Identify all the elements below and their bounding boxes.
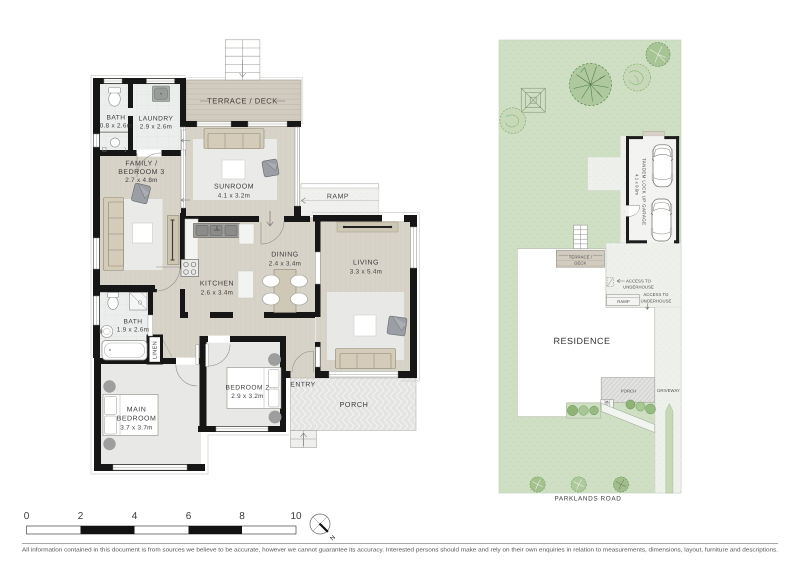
svg-text:KITCHEN: KITCHEN: [200, 281, 234, 288]
svg-text:2.9 x 2.6m: 2.9 x 2.6m: [140, 124, 172, 131]
svg-text:BEDROOM 3: BEDROOM 3: [118, 169, 165, 176]
svg-text:RAMP: RAMP: [327, 193, 349, 200]
svg-text:ENTRY: ENTRY: [290, 382, 315, 389]
svg-text:PARKLANDS ROAD: PARKLANDS ROAD: [555, 496, 622, 503]
svg-text:2.4 x 3.4m: 2.4 x 3.4m: [269, 261, 301, 268]
svg-text:DINING: DINING: [271, 252, 299, 259]
svg-text:BATH: BATH: [123, 319, 142, 326]
svg-text:2.6 x 3.4m: 2.6 x 3.4m: [201, 290, 233, 297]
svg-text:ACCESS TO: ACCESS TO: [644, 292, 670, 297]
svg-text:2.9 x 3.2m: 2.9 x 3.2m: [231, 393, 263, 400]
svg-text:2.7 x 4.8m: 2.7 x 4.8m: [125, 177, 157, 184]
svg-text:TANDEM LOCK UP GARAGE: TANDEM LOCK UP GARAGE: [642, 158, 647, 225]
svg-text:RAMP: RAMP: [617, 299, 630, 304]
svg-text:UNDERHOUSE: UNDERHOUSE: [623, 284, 654, 289]
svg-text:BEDROOM: BEDROOM: [117, 416, 157, 423]
svg-text:UNDERHOUSE: UNDERHOUSE: [641, 298, 672, 303]
svg-text:LIVING: LIVING: [353, 260, 379, 267]
svg-text:DRIVEWAY: DRIVEWAY: [657, 388, 680, 393]
svg-text:6: 6: [186, 511, 192, 522]
svg-text:2: 2: [78, 511, 84, 522]
svg-text:ACCESS TO: ACCESS TO: [626, 278, 652, 283]
svg-text:3.7 x 3.7m: 3.7 x 3.7m: [120, 425, 152, 432]
svg-text:FAMILY /: FAMILY /: [125, 160, 157, 168]
svg-text:10: 10: [290, 511, 302, 522]
svg-text:4.1 x 9.0m: 4.1 x 9.0m: [635, 174, 640, 195]
svg-text:3.3 x 5.4m: 3.3 x 5.4m: [350, 269, 382, 276]
svg-text:TERRACE /: TERRACE /: [569, 254, 593, 259]
svg-text:LINEN: LINEN: [153, 341, 159, 359]
svg-text:MAIN: MAIN: [127, 407, 147, 414]
svg-text:0: 0: [24, 511, 30, 522]
svg-text:LAUNDRY: LAUNDRY: [139, 116, 174, 123]
svg-text:4: 4: [132, 511, 138, 522]
svg-text:BEDROOM 2: BEDROOM 2: [225, 385, 269, 392]
svg-text:BATH: BATH: [106, 115, 125, 122]
svg-text:PORCH: PORCH: [621, 388, 637, 393]
svg-text:All information contained in t: All information contained in this docume…: [22, 547, 778, 554]
svg-text:PORCH: PORCH: [340, 400, 369, 409]
svg-text:TERRACE / DECK: TERRACE / DECK: [207, 97, 278, 106]
svg-text:4.1 x 3.2m: 4.1 x 3.2m: [218, 193, 250, 200]
svg-text:SUNROOM: SUNROOM: [214, 184, 254, 191]
svg-text:0.8 x 2.6m: 0.8 x 2.6m: [100, 123, 132, 130]
svg-text:DECK: DECK: [574, 261, 586, 266]
svg-text:RESIDENCE: RESIDENCE: [553, 336, 610, 346]
svg-text:8: 8: [239, 511, 245, 522]
svg-text:1.9 x 2.6m: 1.9 x 2.6m: [117, 327, 149, 334]
